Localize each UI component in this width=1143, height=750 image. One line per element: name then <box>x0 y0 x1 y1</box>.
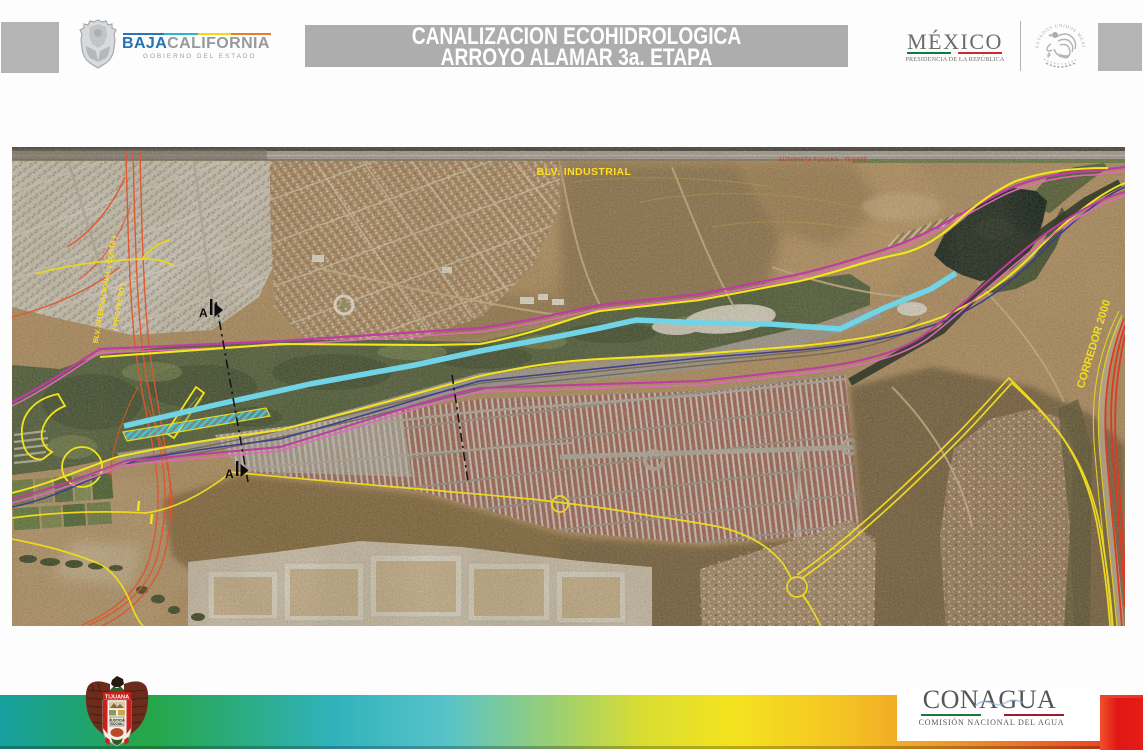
svg-text:ESTADOS UNIDOS MEXICANOS: ESTADOS UNIDOS MEXICANOS <box>1034 19 1086 48</box>
svg-text:AUTOPISTA TIJUANA - TECATE: AUTOPISTA TIJUANA - TECATE <box>779 158 868 164</box>
svg-text:SOCIAL: SOCIAL <box>111 722 124 726</box>
svg-text:A: A <box>199 306 208 320</box>
svg-text:A: A <box>225 467 234 481</box>
svg-text:TIJUANA: TIJUANA <box>105 695 129 701</box>
svg-text:BLV. INDUSTRIAL: BLV. INDUSTRIAL <box>537 166 632 178</box>
